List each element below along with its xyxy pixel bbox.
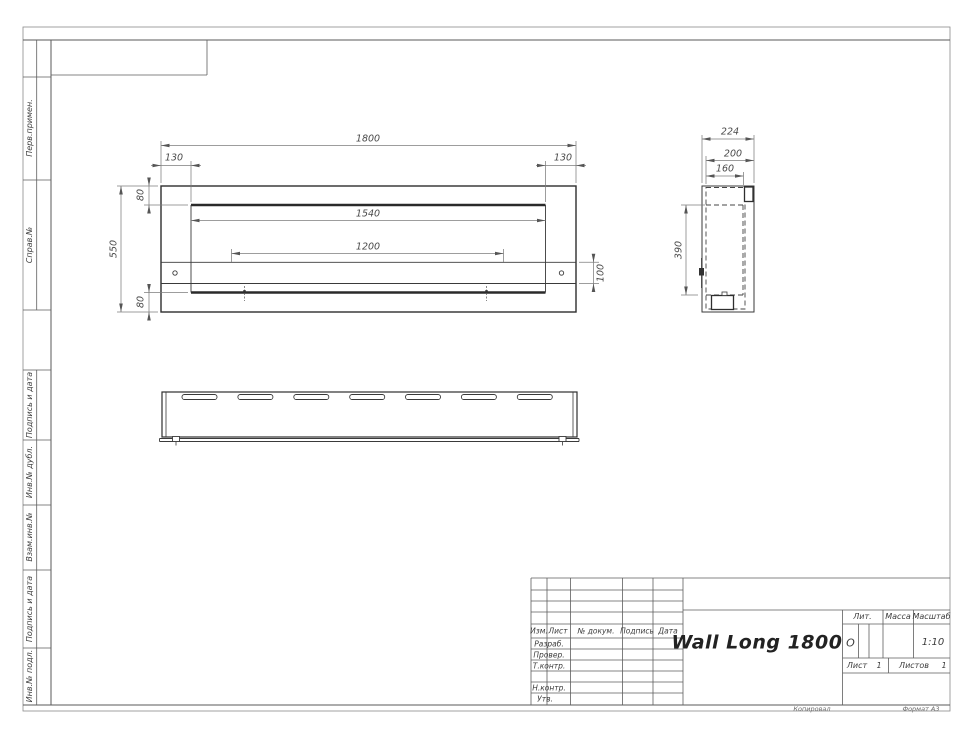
form-grid <box>23 40 950 705</box>
side-view <box>699 186 754 312</box>
dim-front-overall-height: 550 <box>109 240 119 258</box>
titleblock-sheets-value: 1 <box>941 662 946 670</box>
dim-side-depth: 224 <box>721 127 739 137</box>
titleblock-col-sign: Подпись <box>620 627 654 635</box>
titleblock-mass-label: Масса <box>885 613 911 621</box>
dim-side-inner-height: 390 <box>674 241 684 259</box>
document-title: Wall Long 1800 <box>672 634 843 653</box>
footer-format-label: Формат А3 <box>902 705 939 712</box>
titleblock-lit-value: О <box>846 638 855 649</box>
titleblock-col-izm: Изм. <box>530 627 548 635</box>
margin-label-sprav-no: Справ.№ <box>26 227 34 263</box>
drawing-sheet: Перв.примен. Справ.№ Подпись и дата Инв.… <box>0 0 970 749</box>
titleblock-row-tcontrol: Т.контр. <box>533 662 566 670</box>
titleblock-sheet-label: Лист <box>847 662 867 670</box>
footer-copied-label: Копировал <box>793 705 830 712</box>
margin-label-podpis-data-1: Подпись и дата <box>26 372 34 438</box>
titleblock-sheet-value: 1 <box>876 662 881 670</box>
dim-side-body-depth: 200 <box>724 149 742 159</box>
margin-label-inv-dubl: Инв.№ дубл. <box>26 446 34 498</box>
frame-lines <box>23 40 950 705</box>
dim-front-right-inset: 130 <box>554 153 572 163</box>
titleblock-lit-label: Лит. <box>853 613 871 621</box>
margin-label-perv-primen: Перв.примен. <box>26 99 34 157</box>
margin-label-podpis-data-2: Подпись и дата <box>26 576 34 642</box>
dim-side-inner-depth: 160 <box>716 164 734 174</box>
dim-front-left-inset: 130 <box>165 153 183 163</box>
titleblock-col-doc-num: № докум. <box>578 627 615 635</box>
margin-label-vzam-inv: Взам.инв.№ <box>26 512 34 561</box>
titleblock-row-checked: Провер. <box>533 651 564 659</box>
dim-front-bottom-inset: 80 <box>136 296 146 308</box>
dim-front-overall-width: 1800 <box>356 134 380 144</box>
titleblock-row-approved: Утв. <box>537 695 553 703</box>
dim-front-burner-length: 1200 <box>356 242 380 252</box>
dim-front-opening-width: 1540 <box>356 209 380 219</box>
margin-label-inv-podl: Инв.№ подл. <box>26 650 34 703</box>
titleblock-scale-value: 1:10 <box>922 638 944 648</box>
bottom-view <box>160 392 580 446</box>
titleblock-sheets-label: Листов <box>899 662 929 670</box>
dim-front-shelf-height: 100 <box>596 264 606 282</box>
dim-front-top-inset: 80 <box>136 189 146 201</box>
titleblock-scale-label: Масштаб <box>912 613 950 621</box>
titleblock-row-developed: Разраб. <box>534 640 563 648</box>
titleblock-row-ncontrol: Н.контр. <box>532 684 566 692</box>
titleblock-col-list: Лист <box>548 627 567 635</box>
